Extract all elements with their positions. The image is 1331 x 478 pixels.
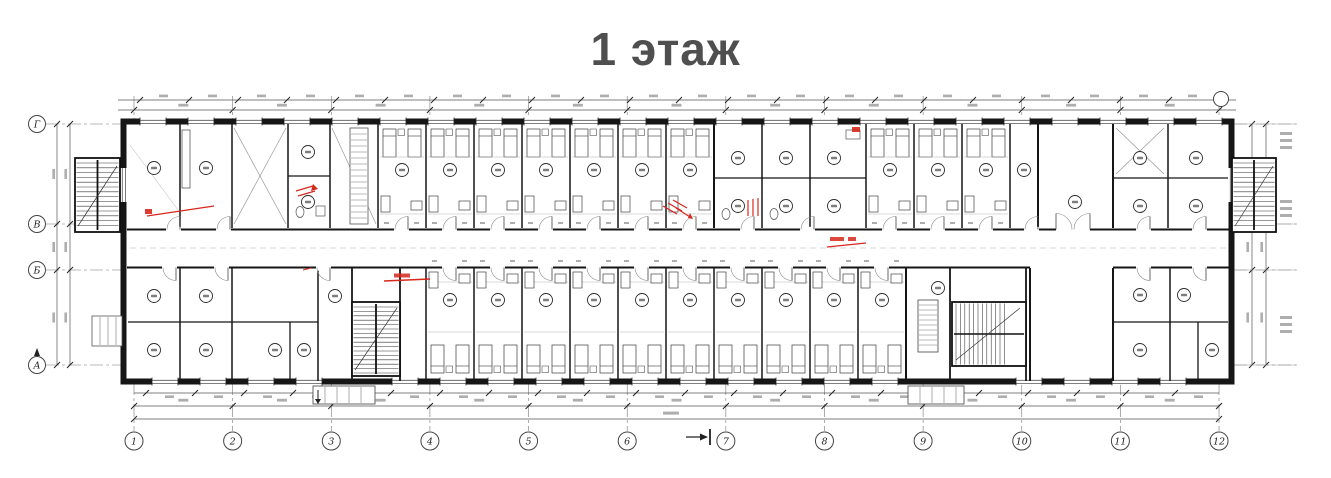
axis-label: 4 xyxy=(426,436,433,447)
axis-label: 9 xyxy=(920,436,926,447)
section-mark xyxy=(686,429,710,445)
axis-label: 5 xyxy=(526,436,532,447)
axis-label: Б xyxy=(33,265,41,276)
axis-label: 11 xyxy=(1114,436,1126,447)
axis-label: 7 xyxy=(723,436,730,447)
floor-plan-drawing: ГВБА123456789101112 xyxy=(0,0,1331,478)
axis-A-arrow xyxy=(34,348,40,356)
axis-label: 12 xyxy=(1213,436,1225,447)
axis-label: 3 xyxy=(328,436,334,447)
axis-label: 2 xyxy=(229,436,236,447)
axis-label: 1 xyxy=(131,436,137,447)
axis-label: 8 xyxy=(821,436,827,447)
floor-plan-page: 1 этаж ГВБА123456789101112 xyxy=(0,0,1331,478)
axis-label: В xyxy=(33,219,41,230)
axis-label: А xyxy=(32,360,40,371)
axis-label: 6 xyxy=(624,436,630,447)
axis-label: Г xyxy=(33,119,41,130)
axis-label: 10 xyxy=(1016,436,1028,447)
